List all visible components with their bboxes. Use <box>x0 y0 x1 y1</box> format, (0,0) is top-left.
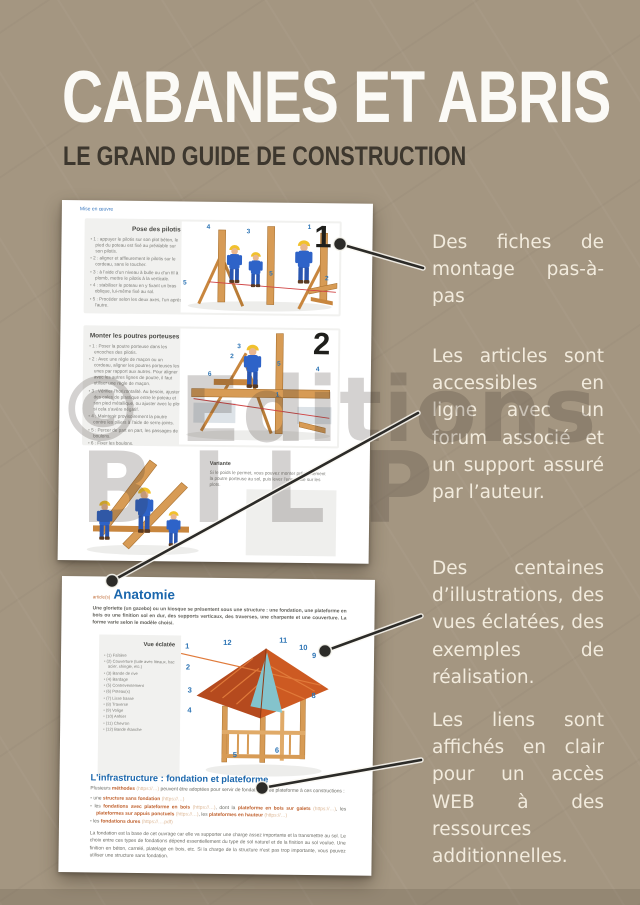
gazebo-label: 8 <box>312 691 316 700</box>
step-list: 1 : appuyer le pilotis sur son plot béto… <box>90 236 183 309</box>
gazebo-label: 9 <box>312 651 316 660</box>
doc-preview-montage: Mise en œuvre Pose des pilotis 1 : appuy… <box>58 200 373 564</box>
infrastructure-footer: La fondation est la base de cet ouvrage … <box>90 831 346 863</box>
gazebo-label: 6 <box>275 746 279 755</box>
gazebo-label: 4 <box>187 706 191 715</box>
gazebo-label: 3 <box>188 686 192 695</box>
page-subtitle: LE GRAND GUIDE DE CONSTRUCTION <box>63 141 466 172</box>
figure-label: 5 <box>269 271 273 278</box>
doc-breadcrumb-link[interactable]: Mise en œuvre <box>80 206 113 212</box>
gazebo-label: 10 <box>299 643 307 652</box>
doc-section-poutres: Monter les poutres porteuses 1 : Poser l… <box>82 325 340 448</box>
gazebo-label: 1 <box>185 642 189 651</box>
infrastructure-intro[interactable]: Plusieurs méthodes (https://…) peuvent ê… <box>90 786 346 796</box>
figure-label: 3 <box>237 343 241 350</box>
infrastructure-links-list[interactable]: une structure sans fondation (https://…)… <box>90 796 346 830</box>
anatomie-heading: Anatomie <box>113 587 175 603</box>
variante-heading: Variante <box>210 461 326 468</box>
figure-label: 4 <box>316 366 320 373</box>
figure-label: 5 <box>277 361 281 368</box>
figure-label: 5 <box>183 279 187 286</box>
figure-label: 3 <box>247 228 251 235</box>
figure-label: 6 <box>208 371 212 378</box>
figure-label: 4 <box>207 224 211 231</box>
doc-section-pose-pilotis: Pose des pilotis 1 : appuyer le pilotis … <box>84 218 342 316</box>
gazebo-label: 11 <box>279 636 287 645</box>
poster: CABANES ET ABRIS LE GRAND GUIDE DE CONST… <box>0 0 640 905</box>
step-list: 1 : Poser la poutre porteuse dans les en… <box>88 343 181 447</box>
exploded-heading: Vue éclatée <box>104 642 175 649</box>
carry-beam-illustration <box>83 455 206 558</box>
figure-label: 1 <box>276 392 280 399</box>
gazebo-label: 12 <box>223 638 231 647</box>
figure-label: 1 <box>308 224 312 231</box>
gazebo-exploded-illustration <box>180 633 346 781</box>
page-title: CABANES ET ABRIS <box>62 56 611 139</box>
figure-label: 2 <box>230 353 234 360</box>
article-tag: article(s) <box>93 594 111 599</box>
infrastructure-link-item[interactable]: les fondations dures (https://….pdf) <box>90 820 346 830</box>
section-heading: Pose des pilotis <box>91 225 181 233</box>
variante-text: Si le poids le permet, vous pouvez monte… <box>209 470 325 490</box>
infrastructure-section: L'infrastructure : fondation et platefor… <box>90 772 347 862</box>
callout-illustrations: Des centaines d’illustrations, des vues … <box>432 555 604 691</box>
doc-section-variante: Variante Si le poids le permet, vous pou… <box>81 453 339 562</box>
infrastructure-heading: L'infrastructure : fondation et platefor… <box>90 772 346 785</box>
figure-poutres: 2 3 2 5 4 6 1 <box>179 328 338 446</box>
figure-number: 2 <box>313 326 331 362</box>
variante-placeholder-box <box>246 489 337 556</box>
anatomie-intro: Une gloriette (un gazebo) ou un kiosque … <box>92 606 346 630</box>
callout-fiches: Des fiches de montage pas-à-pas <box>432 229 604 311</box>
callout-articles: Les articles sont accessibles en ligne a… <box>432 343 604 506</box>
gazebo-label: 5 <box>233 750 237 759</box>
doc-preview-anatomie: article(s)Anatomie Une gloriette (un gaz… <box>58 576 375 876</box>
figure-number: 1 <box>314 219 332 255</box>
exploded-item-list: (1) Faîtière(2) Couverture (tuile avec l… <box>103 653 176 733</box>
figure-label: 2 <box>325 275 329 282</box>
section-heading: Monter les poutres porteuses <box>89 332 179 340</box>
callout-liens: Les liens sont affichés en clair pour un… <box>432 707 604 870</box>
figure-pose-pilotis: 1 4 3 1 5 2 5 <box>181 221 340 314</box>
exploded-view-block: Vue éclatée (1) Faîtière(2) Couverture (… <box>98 632 346 781</box>
gazebo-label: 2 <box>186 663 190 672</box>
figure-gazebo: 1 2 3 4 12 11 10 9 8 5 6 <box>180 633 346 781</box>
